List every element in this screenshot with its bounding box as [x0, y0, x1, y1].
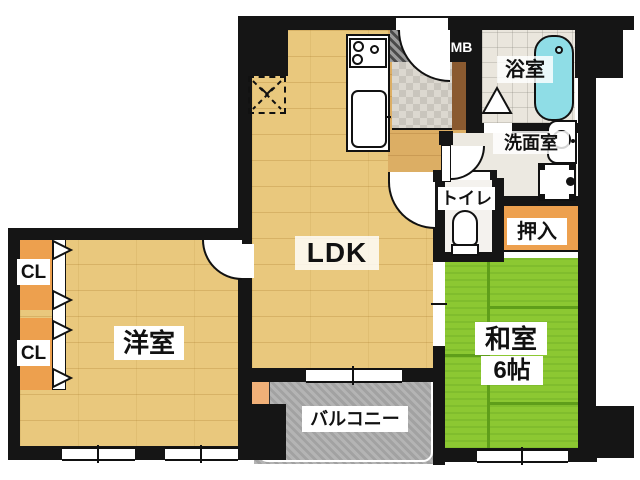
sliding-door-tick [431, 303, 447, 305]
wall-wing-top [8, 228, 252, 240]
closet2-text: CL [21, 344, 46, 363]
ldk-text: LDK [307, 239, 368, 267]
room-label-oshiire: 押入 [507, 218, 567, 245]
window-tick [97, 445, 99, 463]
ldk-door-opening [390, 172, 433, 182]
stove-burner [352, 54, 363, 65]
room-label-western: 洋室 [114, 326, 184, 360]
oshiire-bottom-gap [504, 250, 578, 258]
window-ldk-balcony [306, 368, 402, 383]
window-tick [352, 366, 354, 385]
floor-plan: LDK 洋室 和室 6帖 バルコニー 浴室 洗面室 トイレ 押入 CL CL M… [0, 0, 640, 480]
washer-faucet [566, 177, 575, 186]
washroom-door-leaf [441, 145, 451, 182]
wall-washroom-door-stub [439, 131, 453, 145]
shoe-cabinet [452, 62, 466, 130]
washer-pan-corner [540, 194, 545, 199]
vanity-dot [571, 139, 575, 143]
room-label-toilet: トイレ [438, 187, 495, 210]
bath-text: 浴室 [505, 60, 545, 80]
room-label-balcony: バルコニー [302, 406, 408, 432]
toilet-bowl-icon [452, 210, 478, 246]
washer-pan-corner [540, 165, 545, 170]
window-tick [521, 447, 523, 465]
balcony-text: バルコニー [310, 410, 400, 428]
toilet-tank [451, 244, 479, 256]
room-label-japanese-size: 6帖 [481, 356, 543, 385]
room-label-ldk: LDK [295, 236, 379, 270]
washer-pan-corner [569, 194, 574, 199]
tatami-line [488, 306, 578, 309]
room-label-japanese: 和室 [475, 322, 547, 355]
room-label-bath: 浴室 [497, 56, 553, 83]
stove-burner [370, 45, 379, 54]
wall-ldk-bottom-a [252, 368, 308, 382]
window-tick [200, 445, 202, 463]
refrigerator-space-icon [248, 76, 286, 114]
japanese-text: 和室 [485, 326, 537, 352]
oshiire-text: 押入 [517, 222, 557, 242]
closet-door-track [52, 238, 66, 390]
closet1-text: CL [21, 263, 46, 282]
western-text: 洋室 [123, 330, 175, 356]
japanese-size-text: 6帖 [493, 359, 530, 383]
tatami-line [488, 402, 578, 405]
sink-faucet [385, 116, 391, 118]
washer-pan-corner [569, 165, 574, 170]
closet-label-2: CL [17, 340, 50, 366]
mb-text: MB [451, 40, 473, 54]
sink-icon [351, 90, 387, 148]
entrance-opening [396, 18, 448, 30]
toilet-text: トイレ [441, 190, 492, 207]
pillar-top-left [240, 28, 288, 76]
wall-right [578, 30, 596, 410]
washroom-text: 洗面室 [504, 134, 558, 152]
stove-burner [353, 41, 364, 52]
closet-label-1: CL [17, 259, 50, 285]
meter-box-label: MB [445, 36, 478, 57]
room-label-washroom: 洗面室 [493, 131, 569, 154]
bathtub-drain [555, 46, 563, 54]
wall-bottom-left-block [238, 404, 286, 460]
